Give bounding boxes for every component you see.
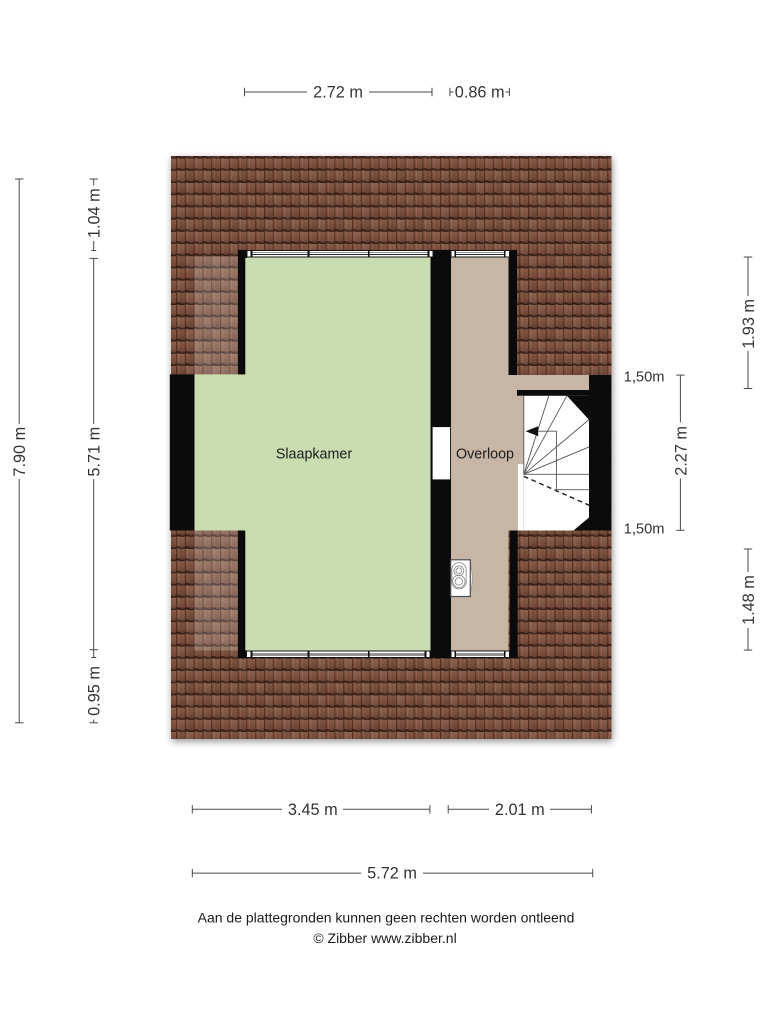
svg-text:1,50m: 1,50m xyxy=(624,369,665,385)
svg-text:7.90 m: 7.90 m xyxy=(11,427,29,477)
svg-text:0.86 m: 0.86 m xyxy=(455,84,505,102)
svg-text:2.01 m: 2.01 m xyxy=(495,801,545,819)
svg-text:5.71 m: 5.71 m xyxy=(86,427,104,477)
svg-text:2.27 m: 2.27 m xyxy=(672,426,690,476)
svg-text:Overloop: Overloop xyxy=(456,447,514,463)
svg-text:1,50m: 1,50m xyxy=(624,522,665,538)
svg-text:Aan de plattegronden kunnen ge: Aan de plattegronden kunnen geen rechten… xyxy=(198,910,575,926)
svg-text:1.48 m: 1.48 m xyxy=(740,575,758,625)
svg-text:1.04 m: 1.04 m xyxy=(86,188,104,238)
svg-text:3.45 m: 3.45 m xyxy=(288,801,338,819)
svg-text:5.72 m: 5.72 m xyxy=(367,865,417,883)
svg-text:© Zibber www.zibber.nl: © Zibber www.zibber.nl xyxy=(313,930,456,946)
svg-text:2.72 m: 2.72 m xyxy=(313,84,363,102)
svg-text:Slaapkamer: Slaapkamer xyxy=(276,447,353,463)
svg-text:0.95 m: 0.95 m xyxy=(86,666,104,716)
svg-text:1.93 m: 1.93 m xyxy=(740,299,758,349)
